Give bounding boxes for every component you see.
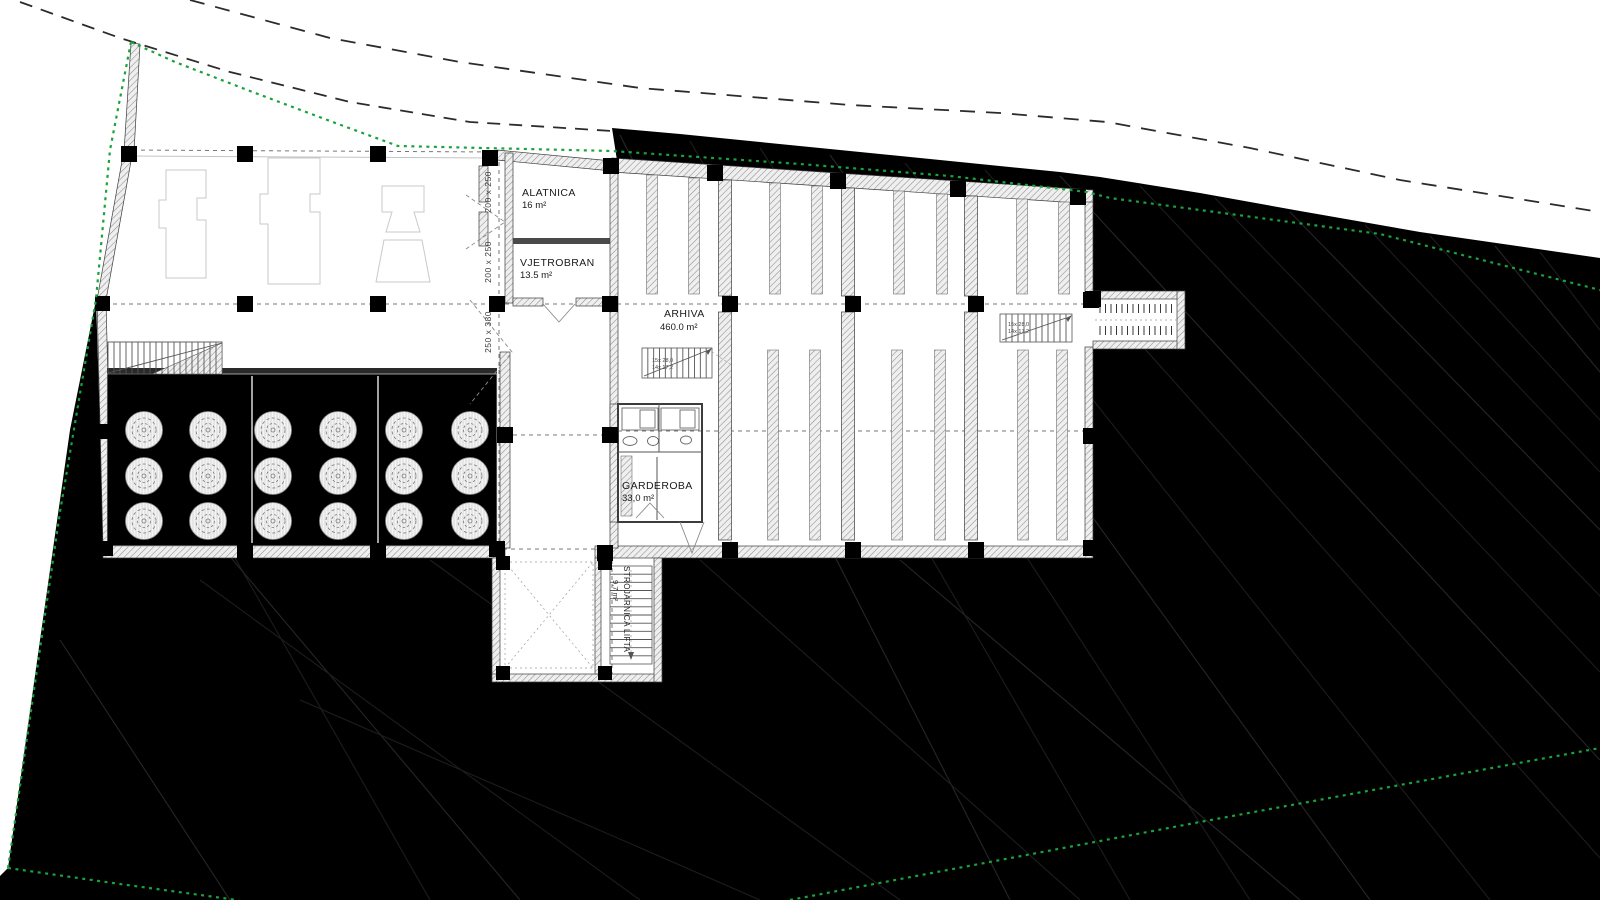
wall-east-upper	[1085, 202, 1093, 293]
column	[496, 556, 510, 570]
tunnel-wall-end	[1177, 291, 1185, 349]
door-jamb-2	[479, 212, 488, 246]
shelf-strip-lower	[892, 350, 903, 540]
wall-vjetrobran-south-1	[513, 298, 543, 306]
barrel-outer	[126, 412, 163, 449]
column	[598, 556, 612, 570]
contour-line-lower	[20, 2, 612, 131]
protrusion-wall-west	[492, 558, 500, 682]
barrel	[126, 412, 163, 449]
column	[95, 424, 110, 439]
column	[722, 542, 738, 558]
column	[603, 158, 619, 174]
vjetrobran-area: 13.5 m²	[520, 270, 552, 281]
column	[370, 146, 386, 162]
shelf-strip-upper	[689, 178, 700, 294]
barrel	[452, 503, 489, 540]
dim-label-2: 200 x 250	[483, 241, 493, 283]
barrel	[452, 412, 489, 449]
floor-plan-drawing: ALATNICA 16 m² VJETROBRAN 13.5 m² ARHIVA…	[0, 0, 1600, 900]
barrel-outer	[255, 458, 292, 495]
dim-label-3: 250 x 380	[483, 311, 493, 353]
protrusion-wall-east	[654, 558, 662, 682]
shelf-strip-upper	[894, 191, 905, 294]
barrel	[386, 458, 423, 495]
tunnel-wall-bottom	[1093, 341, 1185, 349]
vjetrobran-label: VJETROBRAN	[520, 257, 595, 269]
arhiva-label: ARHIVA	[664, 308, 705, 320]
column	[830, 173, 846, 189]
shelf-strip-upper	[647, 175, 658, 294]
wall-east-lower	[1085, 347, 1093, 548]
column	[95, 296, 110, 311]
shelf-strip-lower	[810, 350, 821, 540]
barrel	[190, 412, 227, 449]
barrel-outer	[190, 412, 227, 449]
strojarnica-label: STROJARNICA LIFTA	[622, 566, 631, 652]
barrel	[255, 412, 292, 449]
barrel	[386, 412, 423, 449]
column	[1083, 428, 1099, 444]
protrusion-wall-south	[492, 674, 662, 682]
column	[98, 541, 113, 556]
shelf-strip-upper	[770, 183, 781, 294]
barrel-outer	[452, 503, 489, 540]
column	[950, 181, 966, 197]
column	[121, 146, 137, 162]
barrel-room	[107, 374, 497, 546]
barrel	[386, 503, 423, 540]
barrel-outer	[255, 503, 292, 540]
barrel-outer	[190, 503, 227, 540]
barrel-outer	[190, 458, 227, 495]
barrel	[126, 503, 163, 540]
shelf-strip-lower	[768, 350, 779, 540]
column	[845, 296, 861, 312]
pier-wall-upper	[842, 188, 855, 296]
barrel	[255, 503, 292, 540]
wall-entrance-west	[505, 153, 513, 303]
barrel	[126, 458, 163, 495]
dim-label-1: 200 x 250	[483, 171, 493, 213]
arhiva-stair-note-1: 15x 28,0	[652, 358, 673, 364]
column	[496, 666, 510, 680]
alatnica-label: ALATNICA	[522, 187, 576, 199]
column	[370, 296, 386, 312]
protrusion-wall-divider	[595, 558, 601, 674]
pier-wall-lower	[842, 312, 855, 540]
shelf-strip-upper	[1017, 199, 1028, 294]
barrel-outer	[452, 458, 489, 495]
shelf-strip-lower	[935, 350, 946, 540]
barrel-outer	[386, 503, 423, 540]
column	[237, 543, 253, 559]
column	[370, 543, 386, 559]
garderoba-label: GARDEROBA	[622, 480, 693, 492]
strojarnica-area: 9,7 m²	[611, 580, 620, 602]
east-stair-note-2: 14x 17,2	[1008, 329, 1029, 335]
column	[602, 427, 618, 443]
tunnel-wall-top	[1093, 291, 1185, 299]
wall-spur-northwest	[124, 43, 140, 152]
garderoba-area: 33,0 m²	[622, 493, 654, 504]
barrel-outer	[452, 412, 489, 449]
barrel-cellar	[107, 368, 497, 546]
pier-wall-upper	[719, 180, 732, 296]
wall-alatnica-vjetrobran	[513, 238, 610, 244]
barrel	[255, 458, 292, 495]
column	[497, 427, 513, 443]
barrel	[320, 412, 357, 449]
shelf-strip-upper	[1059, 202, 1070, 294]
barrel	[320, 503, 357, 540]
barrel-outer	[255, 412, 292, 449]
barrel	[452, 458, 489, 495]
shelf-strip-upper	[937, 194, 948, 294]
architectural-floor-plan: ALATNICA 16 m² VJETROBRAN 13.5 m² ARHIVA…	[0, 0, 1600, 900]
column	[237, 296, 253, 312]
column	[602, 296, 618, 312]
column	[968, 296, 984, 312]
barrel-outer	[320, 503, 357, 540]
column	[489, 541, 505, 557]
barrel-outer	[386, 458, 423, 495]
garderoba-wall-west	[610, 404, 618, 522]
arhiva-area: 460.0 m²	[660, 322, 698, 333]
column	[237, 146, 253, 162]
column	[598, 666, 612, 680]
barrel-outer	[126, 458, 163, 495]
barrel-outer	[386, 412, 423, 449]
column	[707, 165, 723, 181]
shelf-strip-upper	[812, 186, 823, 294]
pier-wall-upper	[965, 196, 978, 296]
alatnica-area: 16 m²	[522, 200, 546, 211]
pier-wall-lower	[965, 312, 978, 540]
barrel-outer	[126, 503, 163, 540]
pier-wall-lower	[719, 312, 732, 540]
wall-barrelroom-east	[500, 352, 510, 548]
column	[722, 296, 738, 312]
column	[845, 542, 861, 558]
shelf-strip-lower	[1057, 350, 1068, 540]
column	[489, 296, 505, 312]
barrel	[190, 458, 227, 495]
column	[482, 150, 498, 166]
wall-south-west	[103, 546, 505, 558]
arhiva-stair-note-2: 14x 17,2	[652, 365, 673, 371]
east-stair-note-1: 15x 28,0	[1008, 322, 1029, 328]
column	[1083, 540, 1099, 556]
barrel	[320, 458, 357, 495]
wall-south-east	[595, 546, 1093, 558]
barrel-outer	[320, 412, 357, 449]
column	[968, 542, 984, 558]
barrel-outer	[320, 458, 357, 495]
column	[1085, 291, 1101, 307]
barrel	[190, 503, 227, 540]
shelf-strip-lower	[1018, 350, 1029, 540]
